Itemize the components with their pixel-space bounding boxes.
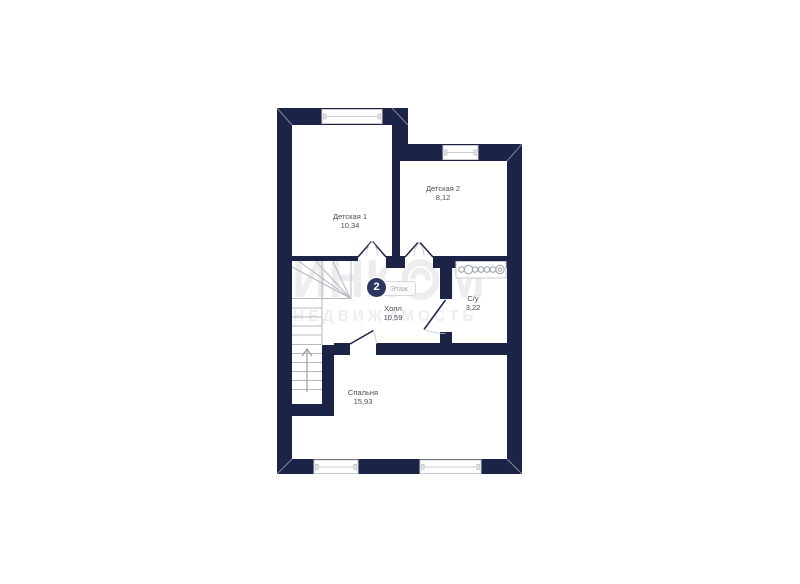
window-children2 [443,146,478,160]
room-label-bedroom: Спальня 15,93 [323,388,403,406]
window-bedroom-2 [420,460,481,474]
floor-plan-page: ИНК М НЕДВИЖИМОСТЬ [0,0,800,584]
wall-hall-top-pillar [386,256,405,268]
door-children1 [358,242,386,258]
room-label-detskaya-1: Детская 1 10,34 [310,212,390,230]
staircase [292,261,351,390]
door-children2 [405,243,433,258]
room-area: 3,22 [443,303,503,312]
room-name: Холл [363,304,423,313]
room-label-hall: Холл 10,59 [363,304,423,322]
wall-left [277,108,292,474]
wall-bedroom-a [334,343,350,355]
radiator [456,262,506,279]
stair-direction-arrow-icon [302,349,312,392]
room-name: Спальня [323,388,403,397]
wall-divider-children-rooms [392,125,400,268]
room-area: 10,34 [310,221,390,230]
room-area: 10,59 [363,313,423,322]
room-area: 15,93 [323,397,403,406]
wall-bedroom-b [376,343,507,355]
room-name: Детская 2 [403,184,483,193]
wall-hall-top-thin [292,256,358,261]
wall-right [507,144,522,474]
room-name: Детская 1 [310,212,390,221]
window-bedroom-1 [314,460,358,474]
window-children1 [322,110,382,124]
room-label-bathroom: С/у 3,22 [443,294,503,312]
door-bedroom [350,331,377,345]
floor-badge: Этаж 2 [367,278,419,298]
room-area: 8,12 [403,193,483,202]
room-label-detskaya-2: Детская 2 8,12 [403,184,483,202]
room-name: С/у [443,294,503,303]
floor-badge-number: 2 [367,278,386,297]
